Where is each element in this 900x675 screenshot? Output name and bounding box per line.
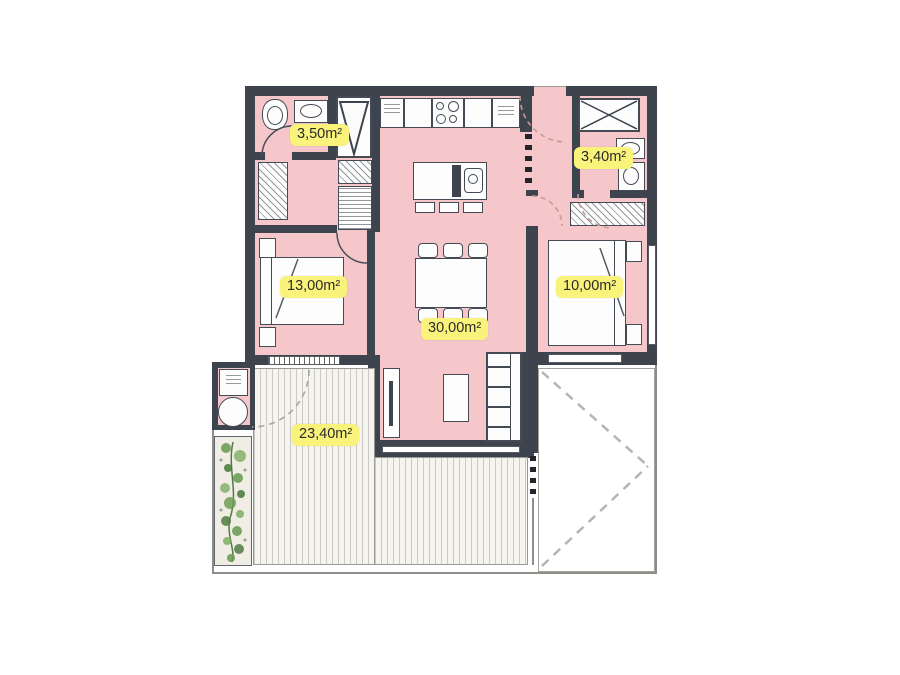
living-window xyxy=(382,446,520,453)
area-label-terrace: 23,40m² xyxy=(292,424,359,446)
dining-table xyxy=(415,258,487,308)
open-area xyxy=(538,368,655,572)
bedroom-2-wardrobe xyxy=(570,202,645,226)
floor-plan: 3,50m² 3,40m² 13,00m² 10,00m² 30,00m² 23… xyxy=(0,0,900,675)
area-label-bathroom-1: 3,50m² xyxy=(290,124,349,146)
terrace-decking-left xyxy=(253,368,375,565)
dining-chair-2 xyxy=(443,243,463,258)
hob-burner-4 xyxy=(449,115,457,123)
planter xyxy=(214,436,252,566)
island-faucet-icon xyxy=(468,174,478,184)
bedroom-2-door-opening xyxy=(526,196,538,226)
sofa-armrest-top xyxy=(487,353,511,367)
bedroom-2-nightstand-bottom xyxy=(626,324,642,345)
bathroom-2-wardrobe-x xyxy=(578,98,640,132)
bedroom-1-wall-right xyxy=(367,225,375,355)
property-line-right xyxy=(655,365,657,574)
bedroom-2-window-bottom xyxy=(548,354,622,363)
terrace-decking-bottom xyxy=(374,457,528,565)
kitchen-counter-unit-3 xyxy=(464,98,492,128)
bedroom-1-headboard xyxy=(260,257,272,325)
water-heater-icon xyxy=(218,397,248,427)
bedroom-1-window xyxy=(268,356,340,365)
kitchen-unit-text xyxy=(384,104,400,116)
bedroom-1-nightstand-bottom xyxy=(259,327,276,347)
hob-burner-3 xyxy=(436,114,446,124)
bedroom-2-nightstand-top xyxy=(626,241,642,262)
property-line-bottom xyxy=(212,572,657,574)
storage-hatched-small xyxy=(338,160,372,184)
bedroom-2-window-right xyxy=(648,245,656,345)
terrace-edge-line xyxy=(532,498,534,565)
area-label-bathroom-2: 3,40m² xyxy=(574,147,633,169)
bathroom-2-door-opening xyxy=(584,190,610,198)
toilet-2-bowl-icon xyxy=(623,167,639,185)
dining-chair-3 xyxy=(468,243,488,258)
duct-hatched-tall xyxy=(338,186,372,230)
washer-label-marks xyxy=(226,375,241,387)
bedroom-1-wardrobe xyxy=(258,162,288,220)
sofa-cushion-3 xyxy=(487,407,511,427)
kitchen-island-divider xyxy=(452,165,461,197)
island-stool-3 xyxy=(463,202,483,213)
dining-chair-1 xyxy=(418,243,438,258)
coffee-table xyxy=(443,374,469,422)
hob-burner-1 xyxy=(436,102,444,110)
bedroom-1-nightstand-top xyxy=(259,238,276,258)
hob-burner-2 xyxy=(448,101,459,112)
terrace-gate-dashes xyxy=(530,456,536,498)
entrance-opening xyxy=(534,86,566,96)
sofa-armrest-bottom xyxy=(487,427,511,441)
area-label-bedroom-2: 10,00m² xyxy=(556,276,623,298)
bathroom-1-door-opening xyxy=(265,152,292,160)
sofa-cushion-2 xyxy=(487,387,511,407)
island-stool-2 xyxy=(439,202,459,213)
kitchen-unit-text-2 xyxy=(498,106,514,116)
sofa-backrest xyxy=(510,353,521,441)
kitchen-counter-unit-2 xyxy=(404,98,432,128)
area-label-bedroom-1: 13,00m² xyxy=(280,276,347,298)
entry-wall-stub xyxy=(520,96,532,132)
kitchen-hall-divider-dotted xyxy=(525,134,532,186)
area-label-living: 30,00m² xyxy=(421,318,488,340)
shaft-wall-right xyxy=(372,96,380,232)
washbasin-1-bowl-icon xyxy=(300,104,322,118)
island-stool-1 xyxy=(415,202,435,213)
toilet-bowl-icon xyxy=(267,106,283,125)
tv-icon xyxy=(389,381,393,426)
sofa-cushion-1 xyxy=(487,367,511,387)
wall-top xyxy=(245,86,657,96)
terrace-side-wall xyxy=(528,365,538,453)
